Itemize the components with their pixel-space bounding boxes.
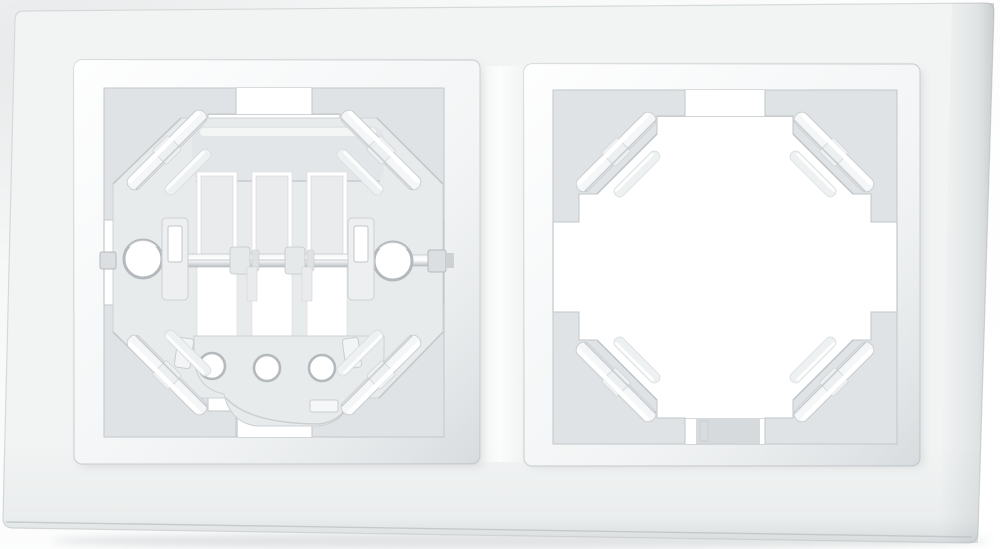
left-aperture bbox=[74, 60, 484, 468]
mounting-hole-right bbox=[374, 242, 412, 280]
rod-left-screw bbox=[100, 252, 116, 269]
rod-hex-nut bbox=[428, 250, 446, 272]
small-hole-2 bbox=[254, 355, 280, 381]
product-photo bbox=[0, 0, 1000, 549]
mounting-hole-left bbox=[124, 240, 162, 278]
wall-plate-illustration bbox=[0, 0, 1000, 549]
bottom-notch bbox=[310, 400, 338, 412]
right-aperture bbox=[524, 64, 924, 468]
ear-plate-right bbox=[348, 218, 374, 300]
divider-highlight bbox=[478, 66, 526, 462]
ear-plate-left bbox=[162, 218, 188, 300]
small-hole-3 bbox=[309, 355, 335, 381]
